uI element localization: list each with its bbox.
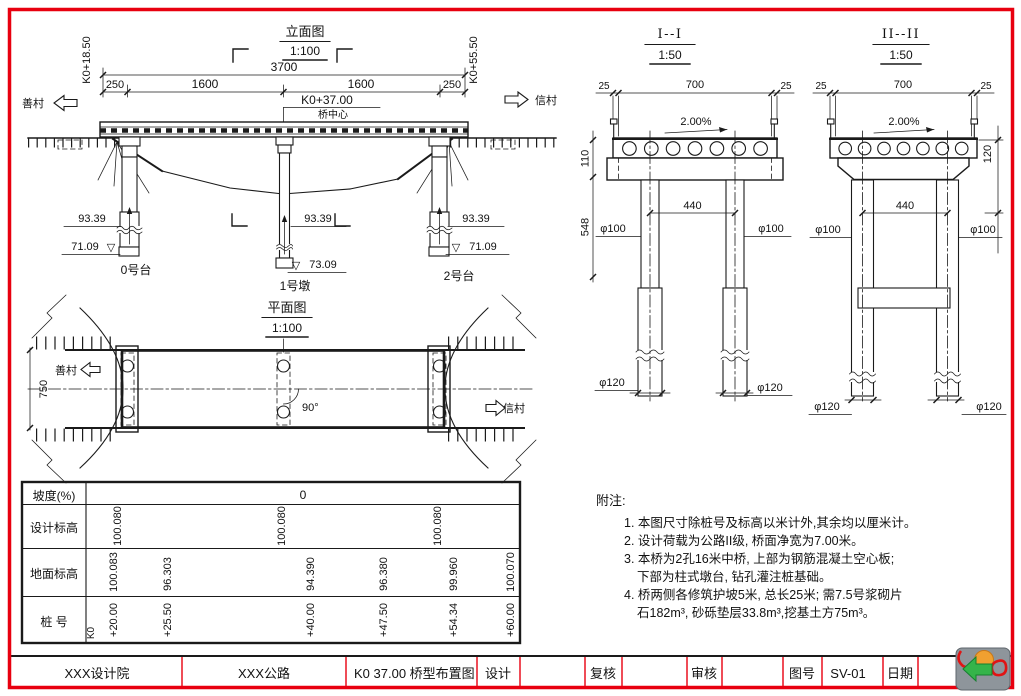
note-line: 4. 桥两侧各修筑护坡5米, 总长25米; 需7.5号浆砌片: [624, 587, 903, 602]
ground-elev: 100.070: [505, 552, 517, 592]
elevation-view: 立面图 1:100 3700 250: [22, 24, 557, 293]
drawing-title: K0 37.00 桥型布置图: [354, 666, 475, 681]
profile-table: 坡度(%) 设计标高 地面标高 桩 号 0 100.080 100.080 10…: [22, 482, 520, 643]
pile-dia: φ120: [814, 401, 840, 413]
support-label: 1号墩: [280, 279, 311, 293]
pile-top-elev: 93.39: [462, 213, 490, 225]
dim-total: 3700: [271, 60, 298, 74]
left-arrow-icon: [81, 363, 100, 377]
row-label-design: 设计标高: [30, 520, 78, 535]
section1-title: I--I: [657, 27, 682, 42]
plan-right-place: 信村: [503, 401, 525, 415]
s2-substructure: [838, 131, 969, 401]
column-dia: φ100: [600, 223, 626, 235]
dim-clear: 700: [894, 79, 912, 91]
title-block: XXX设计院 XXX公路 K0 37.00 桥型布置图 设计 复核 审核 图号 …: [10, 656, 1011, 689]
stake-value: +20.00: [108, 603, 120, 637]
section-I-I: I--I 1:50 25 700 25 2.00%: [580, 27, 795, 401]
section-II-II: II--II 1:50 25 700 25 2.00%: [809, 27, 1006, 415]
base-elev: 71.09: [71, 241, 99, 253]
note-line: 2. 设计荷载为公路II级, 桥面净宽为7.00米。: [624, 533, 864, 548]
dim-seg: 250: [443, 79, 461, 91]
bridge-drawing-sheet: 立面图 1:100 3700 250: [0, 0, 1021, 696]
stake-value: +54.34: [448, 603, 460, 637]
note-line: 1. 本图尺寸除桩号及标高以米计外,其余均以厘米计。: [624, 515, 916, 530]
column-dia: φ100: [758, 223, 784, 235]
column-height: 548: [580, 218, 592, 236]
center-label: 桥中心: [318, 108, 348, 121]
plan-title: 平面图: [267, 300, 306, 315]
note-line: 3. 本桥为2孔16米中桥, 上部为钢筋混凝土空心板;: [624, 551, 894, 566]
ground-elev: 94.390: [305, 557, 317, 591]
design-elev: 100.080: [112, 506, 124, 546]
left-place-label: 善村: [22, 96, 44, 110]
dim-seg: 1600: [192, 77, 219, 91]
ground-elev: 100.083: [108, 552, 120, 592]
column-spacing: 440: [683, 200, 701, 212]
dim-seg: 250: [106, 79, 124, 91]
stake-value: +40.00: [305, 603, 317, 637]
pile-top-elev: 93.39: [304, 213, 332, 225]
support-label: 2号台: [444, 268, 475, 283]
section2-title: II--II: [882, 27, 920, 42]
row-label-stake: 桩 号: [40, 614, 67, 629]
sheet-number-label: 图号: [789, 666, 815, 681]
support-label: 0号台: [121, 262, 152, 277]
plan-scale: 1:100: [272, 321, 302, 335]
base-elev: 73.09: [309, 259, 337, 271]
end-station: K0+55.50: [468, 36, 480, 83]
dim-edge: 25: [815, 81, 827, 92]
ground-elev: 96.303: [162, 557, 174, 591]
stake-value: +60.00: [505, 603, 517, 637]
row-label-ground: 地面标高: [30, 566, 78, 581]
cross-slope: 2.00%: [680, 116, 711, 128]
road-width: 750: [38, 380, 50, 398]
dim-edge: 25: [780, 81, 792, 92]
elevation-title: 立面图: [285, 24, 324, 39]
note-line: 下部为柱式墩台, 钻孔灌注桩基础。: [637, 569, 831, 584]
column-dia: φ100: [815, 224, 841, 236]
column-spacing: 440: [896, 200, 914, 212]
notes-title: 附注:: [596, 493, 626, 508]
ground-elev: 99.960: [448, 557, 460, 591]
pile-top-elev: 93.39: [78, 213, 106, 225]
base-elev: 71.09: [469, 241, 497, 253]
dim-seg: 1600: [348, 77, 375, 91]
center-station: K0+37.00: [301, 93, 353, 107]
skew-angle-arc: [284, 389, 299, 404]
pier-1: [276, 137, 293, 268]
elevation-scale: 1:100: [290, 44, 320, 58]
level-mark-icon: ▽: [292, 260, 301, 272]
plan-left-place: 善村: [55, 363, 77, 377]
s1-substructure: [607, 131, 783, 401]
sheet-number: SV-01: [830, 666, 865, 681]
column-dia: φ100: [970, 224, 996, 236]
right-arrow-icon: [505, 92, 528, 107]
section2-scale: 1:50: [889, 48, 913, 62]
watermark-logo: [956, 648, 1010, 690]
design-label: 设计: [485, 666, 511, 681]
left-arrow-icon: [54, 96, 77, 111]
slope-value: 0: [300, 488, 307, 502]
stake-value: +47.50: [378, 603, 390, 637]
elevation-deck: [100, 122, 468, 137]
plan-view: 平面图 1:100 90° 750: [27, 295, 536, 483]
stake-prefix: K0: [86, 626, 97, 639]
note-line: 石182m³, 砂砾垫层33.8m³,挖基土方75m³。: [637, 605, 875, 620]
start-station: K0+18.50: [81, 36, 93, 83]
project-name: XXX公路: [238, 666, 290, 681]
design-institute: XXX设计院: [64, 666, 129, 681]
section1-scale: 1:50: [658, 48, 682, 62]
deck-height: 110: [580, 150, 592, 168]
pile-dia: φ120: [976, 401, 1002, 413]
right-place-label: 信村: [535, 93, 557, 107]
date-label: 日期: [887, 666, 913, 681]
cross-slope: 2.00%: [888, 116, 919, 128]
design-elev: 100.080: [432, 506, 444, 546]
elevation-dimensions: 3700 250 1600 1600 250: [100, 60, 468, 97]
level-mark-icon: ▽: [452, 242, 461, 254]
row-label-slope: 坡度(%): [33, 488, 76, 503]
review-label: 审核: [691, 666, 717, 681]
notes: 附注: 1. 本图尺寸除桩号及标高以米计外,其余均以厘米计。 2. 设计荷载为公…: [596, 493, 916, 620]
pile-dia: φ120: [757, 382, 783, 394]
ground-elev: 96.380: [378, 557, 390, 591]
deck-height: 120: [982, 145, 994, 163]
skew-angle: 90°: [302, 402, 319, 414]
dim-clear: 700: [686, 79, 704, 91]
stake-value: +25.50: [162, 603, 174, 637]
level-mark-icon: ▽: [107, 242, 116, 254]
pile-dia: φ120: [599, 377, 625, 389]
design-elev: 100.080: [276, 506, 288, 546]
check-label: 复核: [590, 666, 616, 681]
dim-edge: 25: [598, 81, 610, 92]
dim-edge: 25: [980, 81, 992, 92]
